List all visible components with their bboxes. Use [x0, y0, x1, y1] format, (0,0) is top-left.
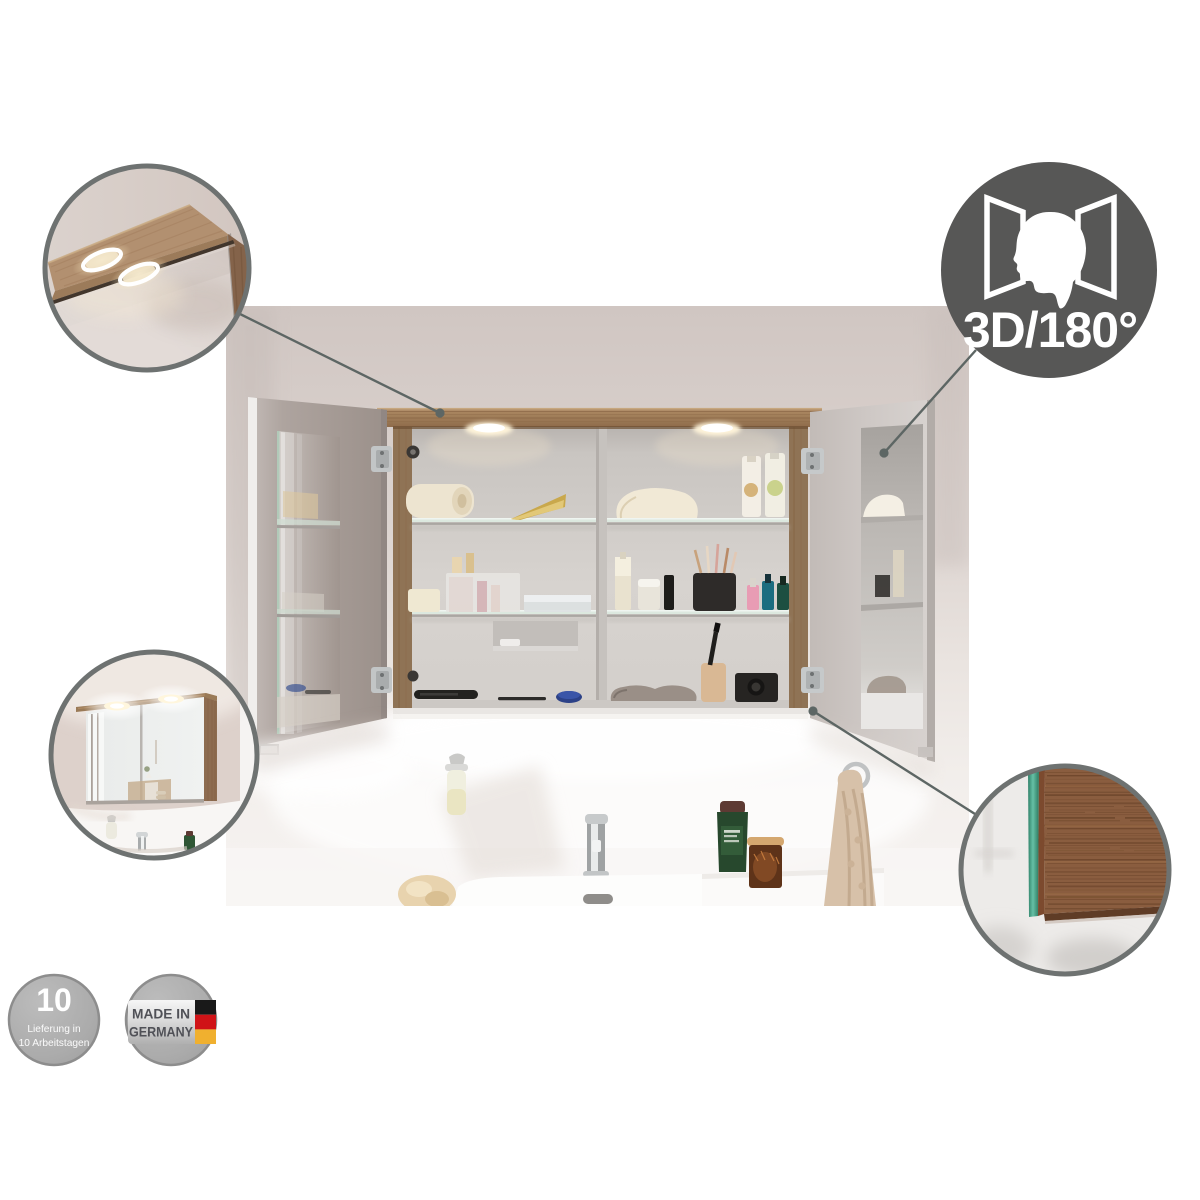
- svg-text:GERMANY: GERMANY: [129, 1024, 194, 1040]
- svg-text:3D/180°: 3D/180°: [963, 302, 1137, 358]
- svg-text:10 Arbeitstagen: 10 Arbeitstagen: [19, 1038, 90, 1049]
- svg-text:Lieferung in: Lieferung in: [27, 1024, 80, 1035]
- svg-text:10: 10: [36, 982, 72, 1018]
- svg-text:MADE IN: MADE IN: [132, 1006, 190, 1022]
